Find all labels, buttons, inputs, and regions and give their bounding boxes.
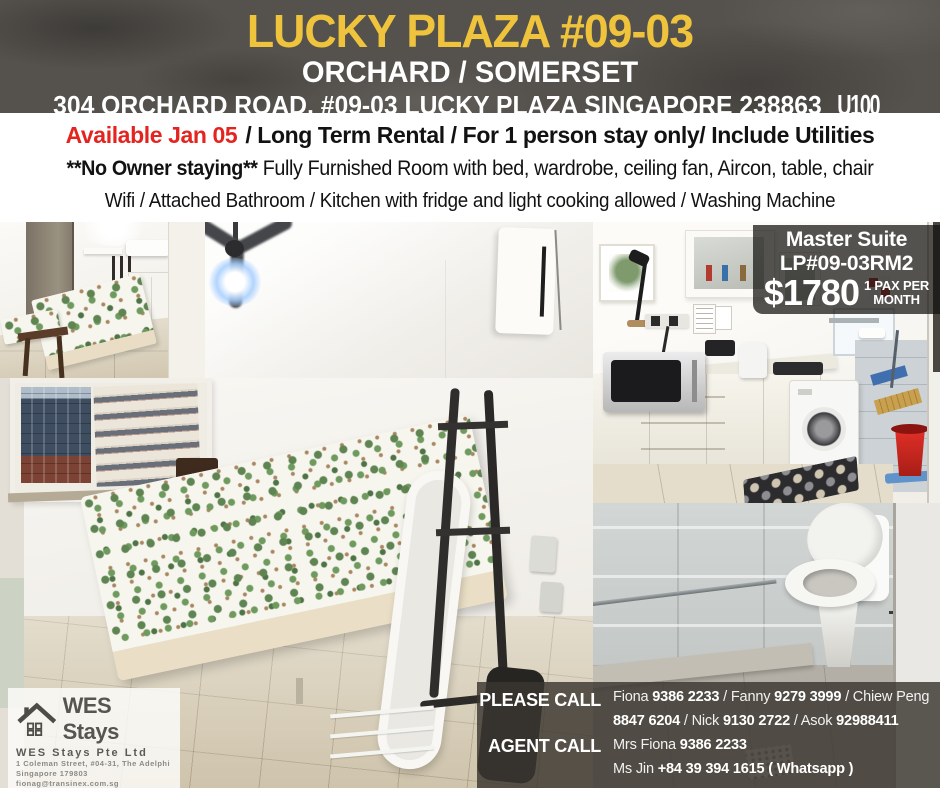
agency-company-name: WES Stays Pte Ltd xyxy=(16,747,172,759)
no-owner-note: **No Owner staying** xyxy=(67,157,258,180)
washing-machine-door xyxy=(802,407,846,451)
contact-line-4: Ms Jin +84 39 394 1615 ( Whatsapp ) xyxy=(613,757,927,781)
photo-bedroom-small xyxy=(0,222,205,378)
light-switch xyxy=(539,581,563,612)
rental-listing-poster: LUCKY PLAZA #09-03 ORCHARD / SOMERSET 30… xyxy=(0,0,940,788)
rental-terms: / Long Term Rental / For 1 person stay o… xyxy=(245,122,874,148)
photo-ceiling-fan-room xyxy=(205,222,593,378)
pot xyxy=(705,340,735,356)
availability-date: Available Jan 05 xyxy=(66,122,238,148)
agency-email: fionag@transinex.com.sg xyxy=(16,779,172,788)
door xyxy=(168,222,205,378)
fan-light xyxy=(207,258,263,306)
price-row: $1780 1 PAX PER MONTH xyxy=(753,272,940,314)
poster-header: LUCKY PLAZA #09-03 ORCHARD / SOMERSET 30… xyxy=(0,0,940,113)
page-title: LUCKY PLAZA #09-03 xyxy=(14,4,926,58)
house-icon xyxy=(16,702,58,736)
agency-logo: WES Stays xyxy=(16,693,172,745)
price-value: $1780 xyxy=(764,272,859,314)
bottle xyxy=(706,265,712,281)
availability-line: Available Jan 05 / Long Term Rental / Fo… xyxy=(0,118,940,152)
aircon-unit xyxy=(126,240,170,256)
fan-hub xyxy=(225,240,244,257)
wall-corner xyxy=(445,260,446,378)
wall-notice xyxy=(715,306,732,330)
location-subtitle: ORCHARD / SOMERSET xyxy=(14,56,926,90)
coat-rack-bar xyxy=(438,421,508,430)
bucket-rim xyxy=(891,424,929,434)
dish-rack xyxy=(829,318,879,323)
contact-lines: Fiona 9386 2233 / Fanny 9279 3999 / Chie… xyxy=(613,685,927,781)
bottle xyxy=(722,265,728,281)
agent-call-label: AGENT CALL xyxy=(477,736,601,757)
agency-logo-text: WES Stays xyxy=(63,693,172,745)
toilet-bowl xyxy=(803,569,857,597)
induction-cooktop xyxy=(773,362,823,375)
wall-notice xyxy=(693,304,716,334)
agency-address-1: 1 Coleman Street, #04-31, The Adelphi xyxy=(16,759,172,769)
listing-details-band: Available Jan 05 / Long Term Rental / Fo… xyxy=(0,113,940,222)
agency-card: WES Stays WES Stays Pte Ltd 1 Coleman St… xyxy=(8,688,180,788)
bottle xyxy=(740,265,746,281)
kettle xyxy=(739,342,767,378)
contact-line-2: 8847 6204 / Nick 9130 2722 / Asok 929884… xyxy=(613,709,927,733)
amenities-line: Wifi / Attached Bathroom / Kitchen with … xyxy=(28,185,912,217)
please-call-label: PLEASE CALL xyxy=(477,690,601,711)
wall-shelf xyxy=(84,248,122,254)
bed-leg xyxy=(296,678,303,704)
sink xyxy=(859,328,885,338)
water-heater-unit xyxy=(495,227,557,335)
contact-line-3: Mrs Fiona 9386 2233 xyxy=(613,733,927,757)
room-name: Master Suite xyxy=(753,228,940,252)
plug xyxy=(651,316,660,326)
pax-note: 1 PAX PER MONTH xyxy=(864,279,929,307)
agency-address-2: Singapore 179803 xyxy=(16,769,172,779)
microwave xyxy=(603,352,705,412)
light-switch xyxy=(529,535,557,573)
photo-collage: Master Suite LP#09-03RM2 $1780 1 PAX PER… xyxy=(0,222,940,788)
contact-overlay: PLEASE CALL AGENT CALL Fiona 9386 2233 /… xyxy=(477,682,940,788)
price-card: Master Suite LP#09-03RM2 $1780 1 PAX PER… xyxy=(753,225,940,314)
plug xyxy=(669,316,678,326)
washing-machine-panel xyxy=(798,389,812,395)
window-view-building xyxy=(21,387,91,483)
furnishing-text: Fully Furnished Room with bed, wardrobe,… xyxy=(263,157,874,180)
furnishing-line: **No Owner staying** Fully Furnished Roo… xyxy=(28,152,912,185)
contact-line-1: Fiona 9386 2233 / Fanny 9279 3999 / Chie… xyxy=(613,685,927,709)
framed-art xyxy=(599,244,655,302)
